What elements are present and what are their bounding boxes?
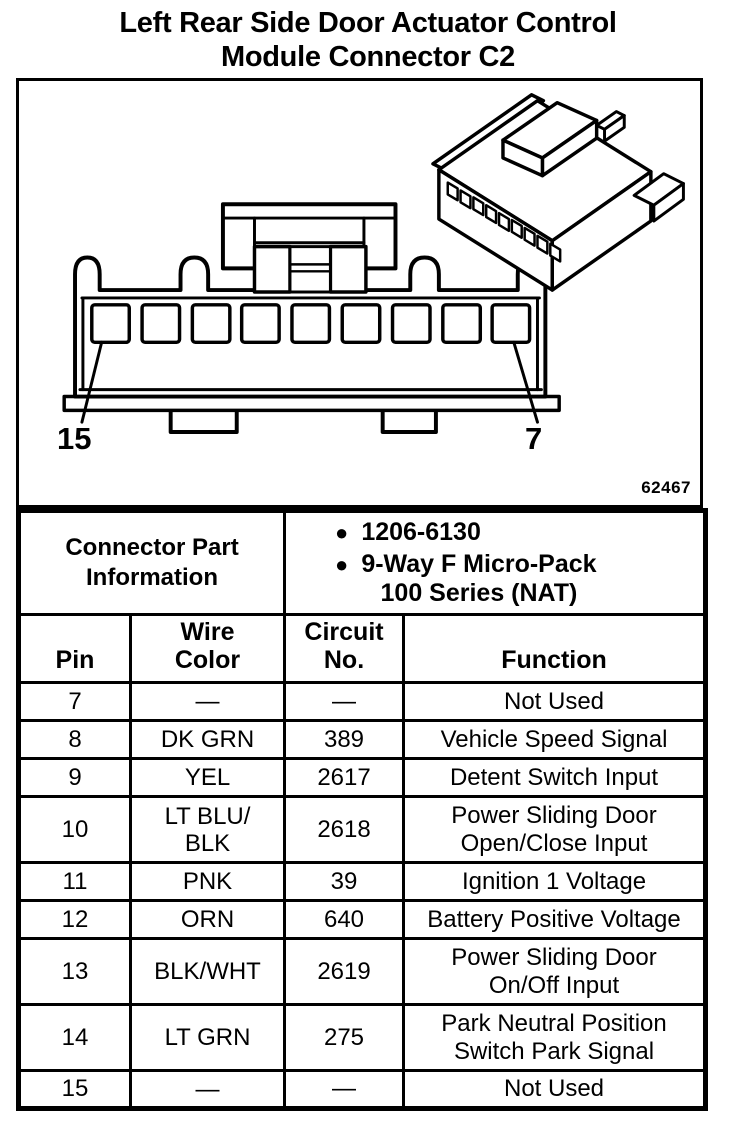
manual-page: Left Rear Side Door Actuator Control Mod… (0, 0, 752, 1132)
table-row: 12 ORN 640 Battery Positive Voltage (19, 901, 706, 939)
bullet-icon: ● (335, 518, 348, 547)
pin-cell: 11 (19, 863, 131, 901)
circuit-no-cell: 2617 (285, 759, 404, 797)
table-row: 13 BLK/WHT 2619 Power Sliding Door On/Of… (19, 939, 706, 1005)
pin-cell: 12 (19, 901, 131, 939)
table-row: 7 — — Not Used (19, 683, 706, 721)
part-info-bullet: ● 1206-6130 (289, 518, 700, 547)
pin-cavities (92, 305, 530, 342)
function-cell: Power Sliding Door On/Off Input (404, 939, 706, 1005)
connector-isometric-view (433, 95, 683, 290)
pin-cell: 13 (19, 939, 131, 1005)
wire-color-cell: — (131, 683, 285, 721)
function-cell: Detent Switch Input (404, 759, 706, 797)
pin-cell: 14 (19, 1005, 131, 1071)
pin-header: Pin (19, 615, 131, 683)
connector-figure: 15 7 62467 (16, 78, 703, 508)
table-row: 8 DK GRN 389 Vehicle Speed Signal (19, 721, 706, 759)
pin-cell: 9 (19, 759, 131, 797)
pin-7-callout: 7 (525, 423, 542, 454)
pin-cell: 8 (19, 721, 131, 759)
circuit-no-cell: 389 (285, 721, 404, 759)
function-header: Function (404, 615, 706, 683)
part-info-label: Connector Part Information (19, 511, 285, 615)
part-info-details: ● 1206-6130 ● 9-Way F Micro-Pack 100 Ser… (285, 511, 706, 615)
function-cell: Power Sliding Door Open/Close Input (404, 797, 706, 863)
pin-cell: 10 (19, 797, 131, 863)
function-cell: Ignition 1 Voltage (404, 863, 706, 901)
part-info-bullet: ● 9-Way F Micro-Pack 100 Series (NAT) (289, 550, 700, 608)
function-cell: Battery Positive Voltage (404, 901, 706, 939)
circuit-no-cell: 640 (285, 901, 404, 939)
table-row: 9 YEL 2617 Detent Switch Input (19, 759, 706, 797)
pin-cell: 7 (19, 683, 131, 721)
circuit-no-cell: 2619 (285, 939, 404, 1005)
circuit-no-cell: — (285, 1071, 404, 1109)
table-header-row: Pin Wire Color Circuit No. Function (19, 615, 706, 683)
circuit-no-cell: 2618 (285, 797, 404, 863)
table-row: 15 — — Not Used (19, 1071, 706, 1109)
function-cell: Vehicle Speed Signal (404, 721, 706, 759)
circuit-no-cell: 39 (285, 863, 404, 901)
circuit-no-cell: 275 (285, 1005, 404, 1071)
function-cell: Not Used (404, 683, 706, 721)
wire-color-cell: DK GRN (131, 721, 285, 759)
pin-cell: 15 (19, 1071, 131, 1109)
figure-number: 62467 (641, 478, 691, 498)
function-cell: Not Used (404, 1071, 706, 1109)
wire-color-header: Wire Color (131, 615, 285, 683)
wire-color-cell: BLK/WHT (131, 939, 285, 1005)
pin-table: Connector Part Information ● 1206-6130 ●… (16, 508, 708, 1111)
wire-color-cell: ORN (131, 901, 285, 939)
bullet-icon: ● (335, 550, 348, 579)
table-row: 14 LT GRN 275 Park Neutral Position Swit… (19, 1005, 706, 1071)
circuit-no-cell: — (285, 683, 404, 721)
wire-color-cell: YEL (131, 759, 285, 797)
connector-diagram-svg (19, 81, 700, 505)
circuit-no-header: Circuit No. (285, 615, 404, 683)
part-info-row: Connector Part Information ● 1206-6130 ●… (19, 511, 706, 615)
wire-color-cell: LT GRN (131, 1005, 285, 1071)
page-title: Left Rear Side Door Actuator Control Mod… (0, 6, 736, 74)
wire-color-cell: LT BLU/ BLK (131, 797, 285, 863)
wire-color-cell: PNK (131, 863, 285, 901)
table-row: 10 LT BLU/ BLK 2618 Power Sliding Door O… (19, 797, 706, 863)
wire-color-cell: — (131, 1071, 285, 1109)
latch-tower (223, 204, 396, 292)
pin-15-callout: 15 (57, 423, 91, 454)
table-row: 11 PNK 39 Ignition 1 Voltage (19, 863, 706, 901)
function-cell: Park Neutral Position Switch Park Signal (404, 1005, 706, 1071)
